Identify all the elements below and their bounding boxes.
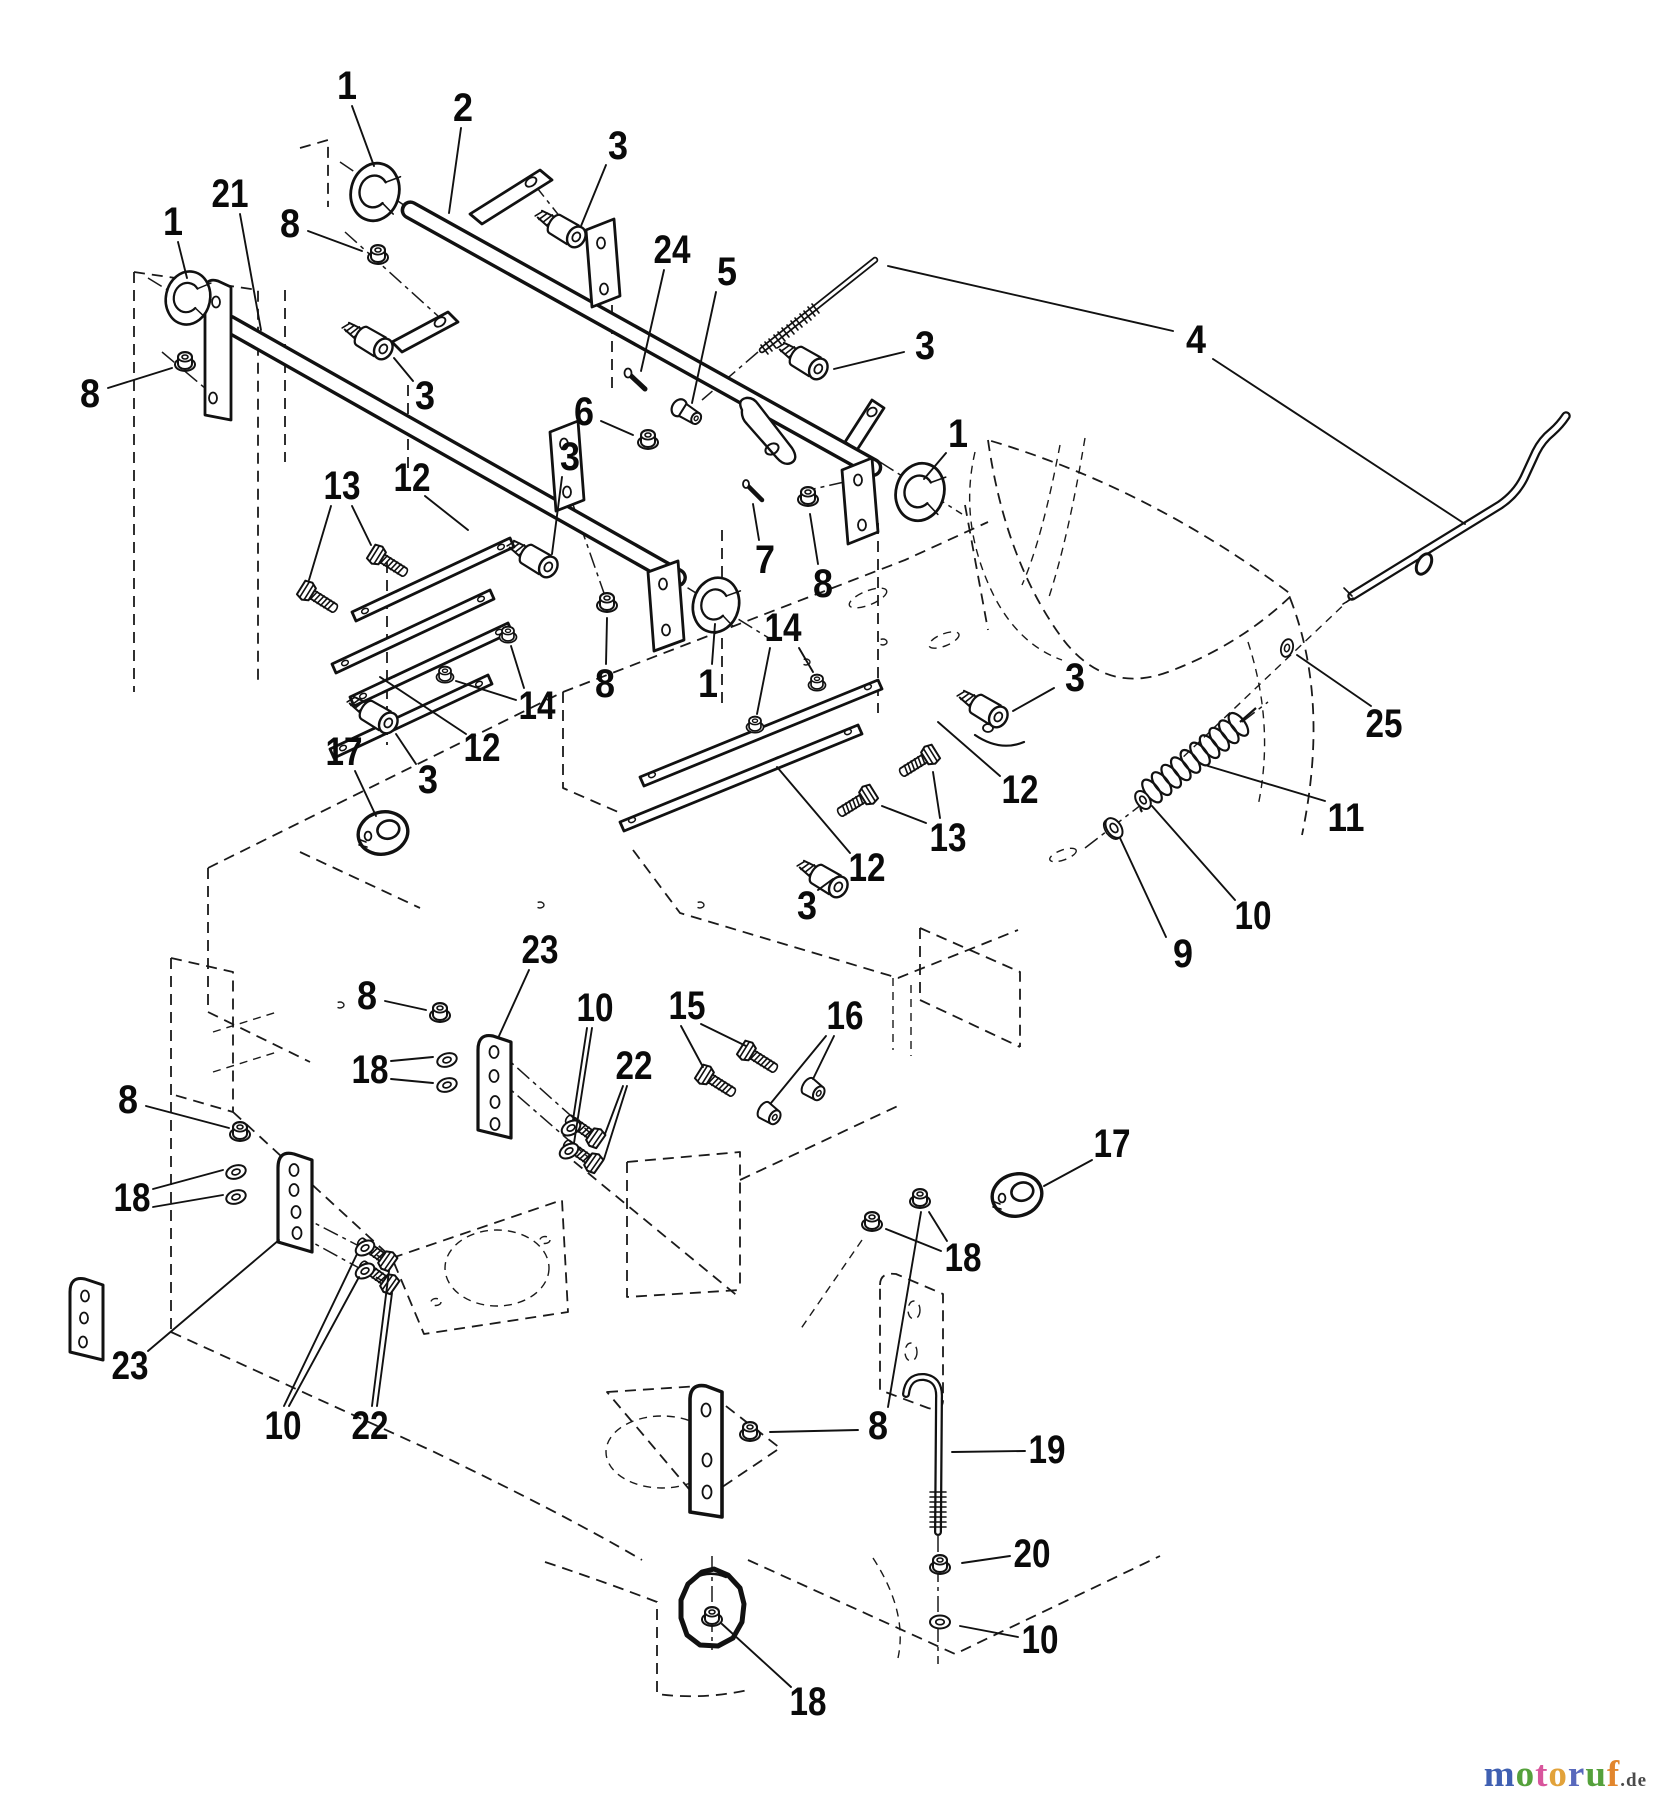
- callout-8: 8: [813, 562, 833, 606]
- c-washer-1: [889, 458, 950, 526]
- callout-leader-23: [499, 970, 529, 1036]
- fitting-5: [669, 396, 705, 428]
- callout-leader-4: [888, 266, 1173, 331]
- callout-20: 20: [1014, 1532, 1051, 1576]
- pin-24: [625, 369, 646, 390]
- callout-23: 23: [112, 1344, 149, 1388]
- watermark-suffix: .de: [1620, 1770, 1647, 1791]
- diagram-canvas: 1232451218386341871141412133123178121213…: [0, 0, 1657, 1800]
- callout-leader-18: [153, 1195, 223, 1207]
- callout-leader-10: [960, 1626, 1018, 1637]
- washer-25: [1279, 638, 1295, 658]
- hex-bolt-13: [366, 543, 412, 582]
- watermark-letter: f: [1607, 1754, 1620, 1795]
- flange-nut-8: [740, 1422, 760, 1441]
- callout-19: 19: [1029, 1428, 1066, 1472]
- callout-leader-18: [886, 1229, 941, 1251]
- collar-17-right: [988, 1169, 1047, 1222]
- callout-leader-8: [108, 368, 172, 388]
- callout-9: 9: [1173, 932, 1193, 976]
- callout-12: 12: [464, 726, 501, 770]
- callout-5: 5: [717, 250, 737, 294]
- callout-16: 16: [827, 994, 864, 1038]
- callout-leader-21: [240, 214, 261, 330]
- socket-bolt-3: [338, 315, 396, 363]
- callout-17: 17: [1094, 1122, 1131, 1166]
- spacer-16: [755, 1100, 784, 1127]
- callout-leader-8: [606, 618, 607, 664]
- callout-15: 15: [669, 984, 706, 1028]
- callout-1: 1: [948, 412, 968, 456]
- callout-18: 18: [945, 1236, 982, 1280]
- watermark-logo: motoruf.de: [1484, 1753, 1647, 1796]
- callout-leader-18: [391, 1057, 433, 1061]
- callout-leader-25: [1297, 655, 1371, 706]
- flange-nut-14: [500, 627, 517, 643]
- watermark-letter: m: [1484, 1754, 1516, 1795]
- callout-8: 8: [357, 974, 377, 1018]
- spring-11: [1139, 708, 1256, 812]
- callout-leader-14: [511, 646, 524, 688]
- washer-18: [435, 1051, 458, 1070]
- callout-leader-8: [810, 514, 818, 564]
- callout-leader-15: [681, 1026, 703, 1067]
- callout-leader-3: [1013, 688, 1054, 711]
- callout-17: 17: [326, 730, 363, 774]
- bracket-spindle: [690, 1386, 722, 1517]
- callout-leader-3: [834, 352, 904, 369]
- callout-3: 3: [608, 124, 628, 168]
- c-washer-1: [687, 572, 745, 637]
- plate-23-left: [278, 1153, 312, 1252]
- plate-23-mid: [478, 1036, 511, 1138]
- callout-25: 25: [1366, 702, 1403, 746]
- callout-leader-11: [1208, 766, 1325, 801]
- callout-23: 23: [522, 928, 559, 972]
- callout-8: 8: [595, 662, 615, 706]
- callout-3: 3: [915, 324, 935, 368]
- callout-4: 4: [1186, 318, 1207, 362]
- callout-leader-23: [148, 1240, 279, 1351]
- flange-nut-8: [368, 245, 388, 264]
- callout-leader-18: [391, 1079, 433, 1083]
- callout-12: 12: [394, 456, 431, 500]
- callout-leader-13: [933, 772, 940, 818]
- callout-layer: 1232451218386341871141412133123178121213…: [80, 64, 1465, 1724]
- callout-leader-3: [581, 165, 606, 226]
- watermark-letter: o: [1516, 1754, 1536, 1795]
- callout-10: 10: [1022, 1618, 1059, 1662]
- socket-bolt-3: [953, 683, 1011, 731]
- callout-leader-13: [352, 506, 371, 545]
- callout-8: 8: [280, 202, 300, 246]
- watermark-letter: u: [1585, 1754, 1607, 1795]
- watermark-letter: o: [1548, 1754, 1568, 1795]
- flange-nut-18: [862, 1212, 882, 1231]
- callout-leader-7: [753, 504, 759, 540]
- callout-leader-18: [722, 1624, 791, 1687]
- bracket-far-left: [70, 1279, 103, 1360]
- exploded-parts-diagram: 1232451218386341871141412133123178121213…: [0, 0, 1657, 1800]
- callout-6: 6: [574, 390, 594, 434]
- flange-nut-14: [437, 667, 454, 683]
- threaded-rod-4: [761, 260, 875, 354]
- spacer-16: [799, 1076, 828, 1103]
- callout-22: 22: [352, 1404, 389, 1448]
- callout-3: 3: [1065, 656, 1085, 700]
- collar-17-left: [354, 807, 413, 860]
- callout-leader-3: [394, 358, 413, 381]
- callout-leader-10: [574, 1028, 592, 1143]
- callout-leader-18: [153, 1170, 223, 1189]
- callout-13: 13: [930, 816, 967, 860]
- callout-11: 11: [1328, 796, 1365, 840]
- washer-10: [557, 1140, 581, 1161]
- flange-nut-6: [638, 430, 658, 449]
- callout-leader-2: [449, 128, 461, 213]
- washer-18: [224, 1163, 247, 1182]
- spacer-washer-9: [1100, 815, 1126, 842]
- c-washer-1: [345, 158, 406, 226]
- callout-leader-13: [882, 806, 926, 823]
- watermark-text: motoruf: [1484, 1754, 1621, 1795]
- callout-leader-9: [1120, 838, 1166, 937]
- callout-leader-12: [777, 767, 850, 853]
- washer-10: [930, 1616, 950, 1629]
- callout-1: 1: [163, 200, 183, 244]
- flange-nut-18: [702, 1607, 722, 1626]
- washer-18: [224, 1188, 247, 1207]
- callout-leader-16: [813, 1036, 834, 1079]
- flange-nut-18: [910, 1189, 930, 1208]
- callout-22: 22: [616, 1044, 653, 1088]
- callout-leader-8: [385, 1001, 426, 1010]
- callout-10: 10: [577, 986, 614, 1030]
- callout-leader-20: [962, 1556, 1010, 1563]
- pin-7: [748, 486, 762, 500]
- callout-leader-14: [757, 648, 770, 714]
- flange-nut-8: [798, 487, 818, 506]
- callout-leader-3: [396, 734, 416, 764]
- bar-21: [218, 313, 688, 588]
- callout-2: 2: [453, 86, 473, 130]
- callout-leader-8: [770, 1430, 858, 1432]
- callout-21: 21: [212, 172, 249, 216]
- j-bolt-19: [906, 1377, 946, 1532]
- callout-18: 18: [352, 1048, 389, 1092]
- washer-18: [435, 1076, 458, 1095]
- callout-leader-1: [352, 106, 374, 166]
- watermark-letter: r: [1568, 1754, 1585, 1795]
- callout-12: 12: [1002, 768, 1039, 812]
- flange-nut-14: [809, 675, 826, 691]
- callout-3: 3: [418, 758, 438, 802]
- callout-18: 18: [790, 1680, 827, 1724]
- callout-3: 3: [797, 884, 817, 928]
- callout-leader-12: [425, 496, 468, 530]
- callout-7: 7: [755, 538, 775, 582]
- callout-10: 10: [265, 1404, 302, 1448]
- hex-bolt-15: [694, 1063, 740, 1102]
- callout-leader-22: [604, 1086, 627, 1159]
- hex-nut-20: [930, 1555, 950, 1574]
- callout-13: 13: [324, 464, 361, 508]
- callout-1: 1: [698, 662, 718, 706]
- callout-3: 3: [415, 374, 435, 418]
- callout-leader-13: [309, 506, 331, 580]
- callout-leader-12: [938, 722, 1000, 776]
- callout-8: 8: [118, 1078, 138, 1122]
- callout-8: 8: [868, 1404, 888, 1448]
- callout-leader-6: [601, 421, 633, 435]
- callout-leader-10: [1152, 806, 1235, 900]
- callout-14: 14: [519, 684, 557, 728]
- callout-leader-10: [284, 1254, 357, 1406]
- callout-leader-15: [701, 1024, 746, 1046]
- callout-3: 3: [560, 435, 580, 479]
- lift-rod-4: [1343, 416, 1566, 604]
- flange-nut-8: [175, 352, 195, 371]
- socket-bolt-3: [531, 203, 589, 251]
- callout-18: 18: [114, 1176, 151, 1220]
- callout-leader-8: [146, 1106, 229, 1128]
- callout-10: 10: [1235, 894, 1272, 938]
- callout-1: 1: [337, 64, 357, 108]
- callout-24: 24: [654, 228, 692, 272]
- callout-12: 12: [849, 846, 886, 890]
- flange-nut-8: [597, 593, 617, 612]
- spring-anchor-edge: [975, 735, 1024, 746]
- flange-nut-8: [430, 1003, 450, 1022]
- washer-10: [1132, 788, 1154, 812]
- hex-bolt-13: [833, 783, 879, 822]
- watermark-letter: t: [1535, 1754, 1548, 1795]
- callout-leader-14: [799, 648, 813, 672]
- callout-leader-19: [952, 1451, 1025, 1452]
- callout-leader-17: [1044, 1160, 1092, 1186]
- flange-nut-8: [230, 1122, 250, 1141]
- callout-leader-10: [289, 1277, 359, 1406]
- callout-leader-4: [1213, 359, 1465, 524]
- callout-8: 8: [80, 372, 100, 416]
- callout-14: 14: [765, 606, 803, 650]
- flange-nut-14: [747, 717, 764, 733]
- hex-bolt-13: [296, 579, 342, 618]
- socket-bolt-3: [773, 335, 831, 383]
